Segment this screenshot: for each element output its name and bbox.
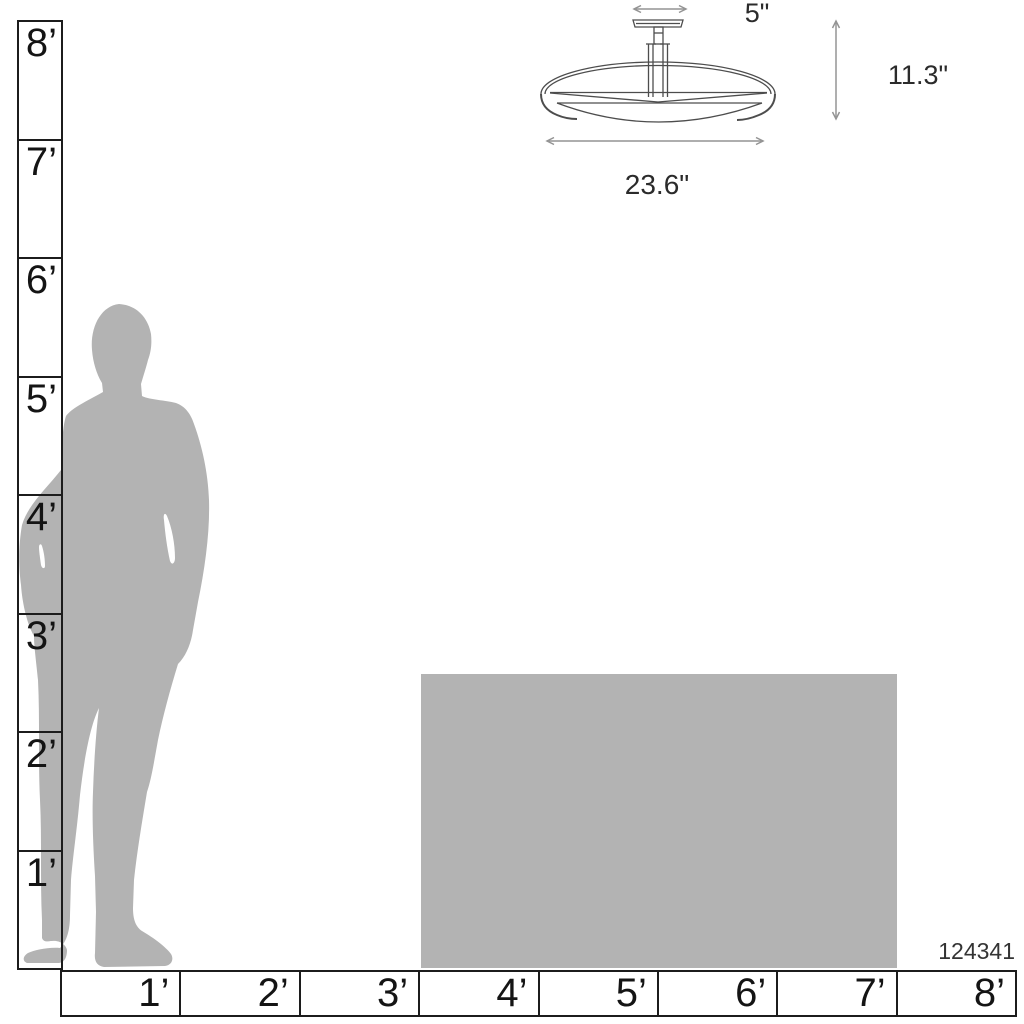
width-ruler-label: 5’ [616, 971, 647, 1015]
width-ruler-cell: 4’ [418, 972, 537, 1015]
height-ruler-cell: 5’ [19, 376, 61, 495]
height-ruler-cell: 1’ [19, 850, 61, 969]
width-ruler: 1’ 2’ 3’ 4’ 5’ 6’ 7’ 8’ [60, 970, 1017, 1017]
product-code: 124341 [938, 938, 1015, 965]
fixture-width-value: 23.6" [598, 169, 716, 201]
height-ruler-label: 8’ [26, 21, 57, 65]
width-ruler-cell: 8’ [896, 972, 1015, 1015]
canopy-width-value: 5" [733, 0, 781, 29]
width-ruler-label: 8’ [974, 971, 1005, 1015]
fixture-bowl [541, 62, 775, 94]
height-ruler-label: 6’ [26, 258, 57, 302]
height-ruler-label: 4’ [26, 495, 57, 539]
height-ruler-cell: 3’ [19, 613, 61, 732]
dimension-diagram: 8’ 7’ 6’ 5’ 4’ 3’ 2’ 1’ 1’ 2’ 3’ 4’ 5’ 6… [0, 0, 1024, 1024]
width-ruler-label: 7’ [854, 971, 885, 1015]
diagram-art [0, 0, 1024, 1024]
width-ruler-cell: 2’ [179, 972, 298, 1015]
dimension-arrows [547, 6, 840, 145]
width-ruler-label: 6’ [735, 971, 766, 1015]
fixture-drawing [541, 20, 775, 122]
width-ruler-cell: 1’ [62, 972, 179, 1015]
height-ruler-label: 7’ [26, 140, 57, 184]
width-ruler-cell: 3’ [299, 972, 418, 1015]
height-ruler-label: 3’ [26, 614, 57, 658]
height-ruler-cell: 2’ [19, 731, 61, 850]
width-ruler-label: 4’ [496, 971, 527, 1015]
width-ruler-label: 1’ [138, 971, 169, 1015]
width-ruler-label: 3’ [377, 971, 408, 1015]
width-ruler-label: 2’ [258, 971, 289, 1015]
height-ruler-cell: 7’ [19, 139, 61, 258]
height-ruler: 8’ 7’ 6’ 5’ 4’ 3’ 2’ 1’ [17, 20, 63, 970]
height-ruler-cell: 6’ [19, 257, 61, 376]
fixture-height-arrow [833, 21, 840, 119]
reference-object-block [421, 674, 897, 968]
width-ruler-cell: 5’ [538, 972, 657, 1015]
fixture-height-value: 11.3" [868, 60, 968, 91]
width-ruler-cell: 7’ [776, 972, 895, 1015]
canopy-width-arrow [634, 6, 686, 13]
height-ruler-label: 2’ [26, 732, 57, 776]
width-ruler-cell: 6’ [657, 972, 776, 1015]
height-ruler-cell: 4’ [19, 494, 61, 613]
fixture-width-arrow [547, 138, 763, 145]
height-ruler-label: 5’ [26, 377, 57, 421]
height-ruler-label: 1’ [26, 851, 57, 895]
height-ruler-cell: 8’ [19, 22, 61, 139]
